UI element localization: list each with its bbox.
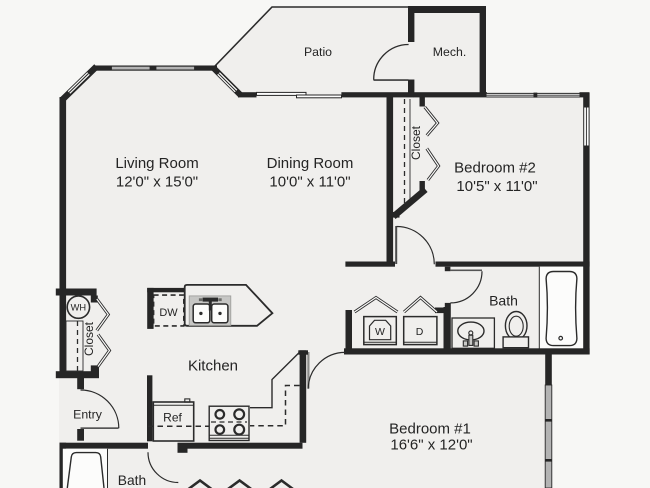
- svg-text:Closet: Closet: [409, 125, 423, 160]
- svg-text:10'0" x 11'0": 10'0" x 11'0": [269, 173, 350, 190]
- svg-text:Mech.: Mech.: [433, 45, 467, 59]
- svg-text:DW: DW: [159, 307, 178, 319]
- svg-text:WH: WH: [71, 303, 87, 313]
- svg-text:16'6" x 12'0": 16'6" x 12'0": [390, 437, 472, 454]
- svg-text:Bedroom #1: Bedroom #1: [389, 421, 471, 438]
- svg-text:Bedroom #2: Bedroom #2: [454, 160, 536, 177]
- svg-text:10'5" x 11'0": 10'5" x 11'0": [456, 178, 537, 195]
- svg-text:D: D: [416, 326, 424, 338]
- svg-text:12'0" x 15'0": 12'0" x 15'0": [116, 173, 198, 190]
- svg-text:Entry: Entry: [73, 408, 103, 422]
- svg-text:Bath: Bath: [489, 293, 518, 309]
- svg-text:Ref: Ref: [163, 411, 182, 425]
- svg-text:Closet: Closet: [82, 321, 96, 356]
- svg-text:Living Room: Living Room: [115, 155, 198, 172]
- svg-text:Kitchen: Kitchen: [188, 358, 238, 375]
- svg-text:Bath: Bath: [118, 473, 146, 488]
- svg-text:Dining Room: Dining Room: [267, 155, 354, 172]
- svg-text:W: W: [375, 326, 385, 338]
- svg-text:Patio: Patio: [304, 45, 332, 59]
